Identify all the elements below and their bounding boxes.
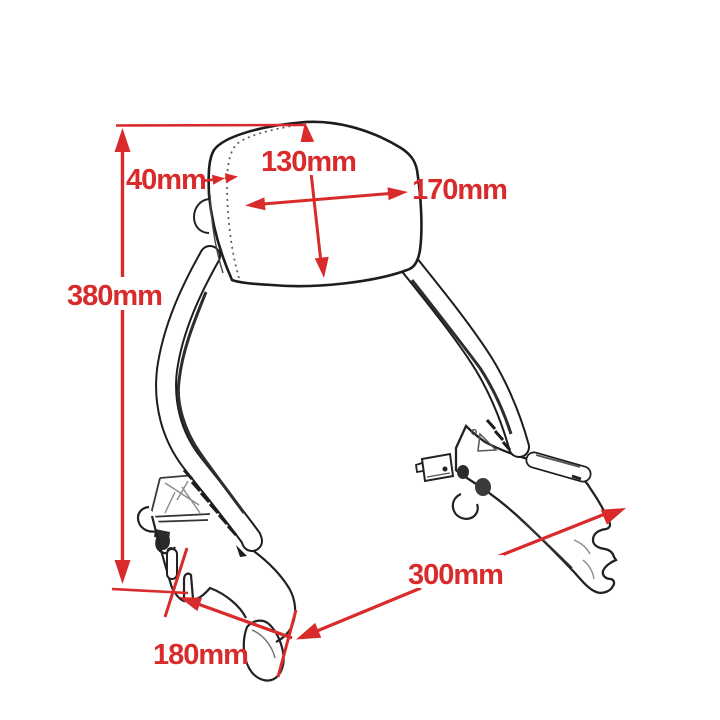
left-bracket-foot bbox=[244, 621, 284, 681]
left-bracket-clamp-bar bbox=[149, 514, 210, 522]
extension-line-top bbox=[116, 125, 305, 126]
right-bracket-block bbox=[422, 454, 453, 481]
dim-label-mount-offset: 180mm bbox=[153, 639, 248, 671]
arrowhead-left-icon bbox=[296, 623, 321, 640]
arrowhead-down-icon bbox=[115, 560, 131, 584]
dim-label-overall-height: 380mm bbox=[67, 280, 162, 312]
extension-line-bottom bbox=[112, 589, 188, 593]
left-bracket-slot bbox=[167, 549, 177, 579]
dim-label-pad-width: 170mm bbox=[412, 174, 507, 206]
arrowhead-left-icon bbox=[179, 597, 202, 611]
right-bracket-knurl bbox=[475, 478, 491, 496]
arrowhead-up-icon bbox=[115, 128, 131, 152]
dim-shaft-300-left bbox=[317, 588, 421, 631]
right-bracket-hook bbox=[453, 494, 478, 519]
left-bracket-bottom-edge bbox=[172, 574, 246, 618]
dim-label-pad-height: 130mm bbox=[261, 146, 356, 178]
right-bracket-block-bolt bbox=[443, 467, 448, 472]
diagram-canvas: 40mm 130mm 170mm 380mm 300mm 180mm bbox=[0, 0, 720, 720]
sissy-bar-dimension-drawing: 40mm 130mm 170mm 380mm 300mm 180mm bbox=[0, 0, 720, 720]
right-bracket-bolt-head bbox=[457, 465, 469, 479]
right-tube-fill bbox=[404, 258, 519, 447]
sissy-bar-left-leg bbox=[166, 256, 252, 557]
left-bracket-foot-inner-curve bbox=[252, 630, 275, 658]
left-bracket-gusset-edge2 bbox=[151, 478, 160, 514]
dim-label-mount-span: 300mm bbox=[408, 559, 503, 591]
dim-label-pad-thickness: 40mm bbox=[126, 164, 206, 196]
pad-side-tab bbox=[194, 199, 209, 233]
